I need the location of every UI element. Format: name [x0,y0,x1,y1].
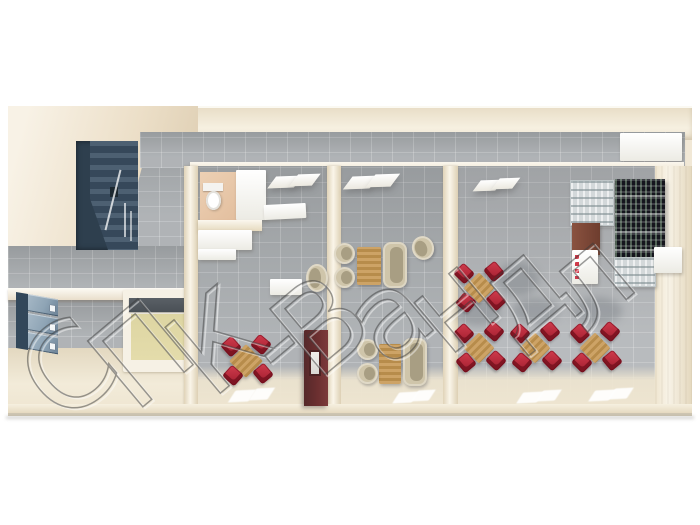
glass-display-fridge [570,180,614,226]
wc-shelf [264,203,307,220]
corridor-wall-unit [620,133,682,161]
floorplan-3d-render: СПК-Вандл СПК-Вандл [0,0,700,525]
wall-cabinet [654,247,682,273]
pantry-room [123,290,193,372]
partition-wall [184,166,198,408]
ground-shadow [6,416,694,419]
chrome-counter [614,257,656,287]
bench-beige [403,338,427,386]
cafe-table [379,344,401,384]
partition-wall [327,166,341,408]
pantry-floor [131,314,185,360]
product-box [572,250,598,284]
chair-beige [357,363,378,384]
chair-beige [334,243,355,264]
side-table [270,279,302,295]
washbasin-counter [198,230,252,250]
chair-shadow [512,298,560,324]
chair-shadow [572,297,622,325]
chair-beige [357,339,378,360]
chair-beige [306,264,328,292]
locker-unit [28,332,58,354]
cabinet-panel [309,350,321,376]
pantry-counter [129,298,189,312]
stair-baluster [130,211,132,241]
toilet-tank [203,183,223,191]
washbasin-counter-step [198,249,236,260]
cafe-table [357,247,381,285]
locker-side-panel [16,292,28,350]
chair-shadow [497,262,539,296]
toilet-bowl [206,191,221,210]
burgundy-cabinet [304,330,328,406]
bench-beige [383,242,407,288]
staircase-well [76,141,138,250]
locker-group [16,292,62,360]
chair-beige [334,267,355,288]
wc-tall-cabinet [236,170,266,220]
product-box-label [575,255,579,279]
dining-floor-lit [458,366,655,406]
partition-wall [443,166,458,408]
stair-baluster [124,203,126,237]
